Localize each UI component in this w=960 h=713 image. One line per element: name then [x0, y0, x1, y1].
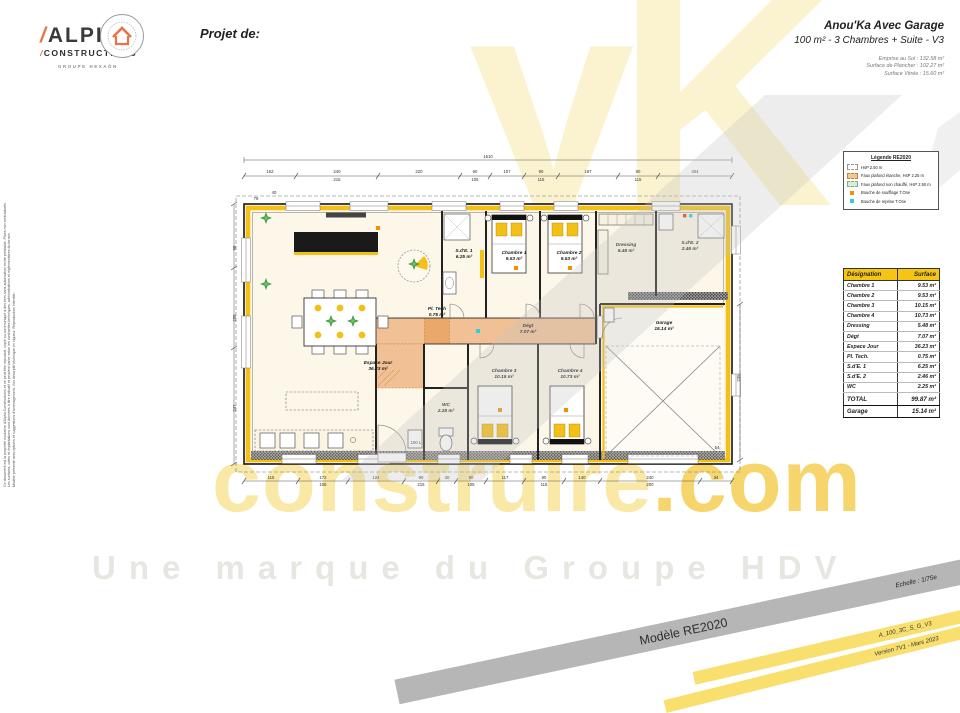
- table-row: S.d'E. 16.25 m²: [844, 362, 940, 372]
- banner-model-label: Modèle RE2020: [638, 615, 729, 647]
- house-icon: [107, 21, 137, 51]
- dimension-label: 107: [503, 169, 511, 174]
- garage-label: Garage: [844, 406, 898, 418]
- dimension-label: 105: [471, 177, 479, 182]
- cell-surface: 10.15 m²: [898, 301, 940, 311]
- dimension-label: 100 L: [411, 440, 422, 445]
- dimension-label: 124: [372, 475, 380, 480]
- dimension-label: 34: [714, 475, 719, 480]
- dimension-label: 1610: [483, 154, 493, 159]
- cell-surface: 10.73 m²: [898, 311, 940, 321]
- dimension-label: 197: [584, 169, 592, 174]
- surface-table-body: Chambre 19.53 m²Chambre 29.53 m²Chambre …: [844, 281, 940, 393]
- watermark-tagline: Une marque du Groupe HDV: [92, 549, 850, 587]
- cell-designation: S.d'E. 2: [844, 372, 898, 382]
- green-swatch: [847, 181, 858, 187]
- orange-swatch: [847, 173, 858, 179]
- cell-designation: Dressing: [844, 321, 898, 331]
- garage-value: 15.14 m²: [898, 406, 940, 418]
- cell-designation: S.d'E. 1: [844, 362, 898, 372]
- plan-title: Anou'Ka Avec Garage: [794, 20, 944, 32]
- legend-item: Bouche de reprise T.One: [847, 198, 935, 204]
- col-designation: Désignation: [844, 269, 898, 281]
- total-label: TOTAL: [844, 393, 898, 406]
- legal-disclaimer: Ce document est la propriété exclusive d…: [3, 97, 15, 487]
- table-row: Chambre 310.15 m²: [844, 301, 940, 311]
- cell-surface: 2.25 m²: [898, 382, 940, 392]
- logo-stamp: [100, 14, 144, 58]
- metric-emprise: Emprise au Sol : 132.58 m²: [794, 56, 944, 63]
- legend-items: HsP 2.50 mFaux plafond étanche, HsP 2.25…: [847, 164, 935, 204]
- dimension-label: 258: [232, 314, 237, 322]
- page: { "colors":{"accent_yellow":"#F3C018","c…: [0, 0, 960, 678]
- banner-model: Modèle RE2020 Echelle : 1/75e: [394, 547, 960, 705]
- dimension-label: 54: [715, 445, 720, 450]
- dimension-label: 215: [417, 482, 425, 487]
- dimension-label: 78: [254, 196, 259, 201]
- legend-label: Bouche de soufflage T.One: [861, 190, 910, 195]
- dimension-label: 90: [636, 169, 641, 174]
- bed-chambre-3: [471, 386, 519, 444]
- legal-disclaimer-text: Ce document est la propriété exclusive d…: [3, 97, 16, 487]
- bed-chambre-1: [485, 215, 533, 273]
- metric-plancher: Surface de Plancher : 102.27 m²: [794, 63, 944, 70]
- logo-slash: /: [40, 24, 48, 47]
- dashed-white-swatch: [847, 164, 858, 170]
- cell-designation: Espace Jour: [844, 342, 898, 352]
- dimension-label: 404: [691, 169, 699, 174]
- dimension-label: 200: [646, 482, 654, 487]
- total-value: 99.87 m²: [898, 393, 940, 406]
- surface-metrics: Emprise au Sol : 132.58 m² Surface de Pl…: [794, 56, 944, 78]
- logo-group-line: GROUPE HEXAÔN: [58, 64, 118, 69]
- legend-label: HsP 2.50 m: [861, 165, 882, 170]
- legend-label: Faux plafond étanche, HsP 2.25 m: [861, 173, 924, 178]
- cell-designation: Pl. Tech.: [844, 352, 898, 362]
- dimension-label: 140: [578, 475, 586, 480]
- dimension-label: 90: [539, 169, 544, 174]
- dimension-label: 240: [333, 169, 341, 174]
- bed-chambre-2: [541, 215, 589, 273]
- cell-designation: Chambre 4: [844, 311, 898, 321]
- plan-subtitle: 100 m² - 3 Chambres + Suite - V3: [794, 35, 944, 46]
- dimension-label: 235: [736, 374, 741, 382]
- title-block: Anou'Ka Avec Garage 100 m² - 3 Chambres …: [794, 20, 944, 78]
- dimension-label: 115: [268, 475, 275, 480]
- cell-surface: 6.25 m²: [898, 362, 940, 372]
- project-label: Projet de:: [200, 26, 260, 41]
- table-row: Dressing5.48 m²: [844, 321, 940, 331]
- table-garage-row: Garage 15.14 m²: [844, 406, 940, 418]
- table-row: Chambre 410.73 m²: [844, 311, 940, 321]
- table-row: Chambre 19.53 m²: [844, 281, 940, 291]
- col-surface: Surface: [898, 269, 940, 281]
- table-row: Espace Jour36.23 m²: [844, 342, 940, 352]
- cell-designation: Chambre 1: [844, 281, 898, 291]
- dimension-label: 90: [419, 475, 424, 480]
- cell-surface: 9.53 m²: [898, 281, 940, 291]
- cell-surface: 0.75 m²: [898, 352, 940, 362]
- dimension-label: 240: [646, 475, 654, 480]
- cell-designation: Chambre 2: [844, 291, 898, 301]
- dimension-label: 40: [272, 190, 277, 195]
- legend-item: HsP 2.50 m: [847, 164, 935, 170]
- cell-surface: 9.53 m²: [898, 291, 940, 301]
- dimension-label: 172: [319, 475, 327, 480]
- table-header-row: Désignation Surface: [844, 269, 940, 281]
- surface-table: Désignation Surface Chambre 19.53 m²Cham…: [843, 268, 940, 418]
- bed-chambre-4: [543, 386, 591, 444]
- cell-surface: 2.46 m²: [898, 372, 940, 382]
- legend-title: Légende RE2020: [847, 155, 935, 161]
- dimension-label: 60: [473, 169, 478, 174]
- legal-line: Modèle présenté avec options et suggesti…: [12, 97, 16, 487]
- legend-item: Faux plafond non chauffé, HsP 2.50 m: [847, 181, 935, 187]
- dimension-label: 162: [266, 169, 274, 174]
- dimension-label: 115: [541, 482, 548, 487]
- table-row: Pl. Tech.0.75 m²: [844, 352, 940, 362]
- dimension-label: 105: [319, 482, 327, 487]
- dining-table: [292, 290, 388, 354]
- dot-orange-swatch: [847, 190, 858, 196]
- dimension-label: 115: [538, 177, 545, 182]
- table-row: Dégt7.07 m²: [844, 331, 940, 341]
- table-total-row: TOTAL 99.87 m²: [844, 393, 940, 406]
- banner-scale-label: Echelle : 1/75e: [895, 574, 938, 590]
- cell-surface: 7.07 m²: [898, 331, 940, 341]
- cell-surface: 5.48 m²: [898, 321, 940, 331]
- dimension-label: 105: [467, 482, 475, 487]
- dimension-label: 30: [445, 475, 450, 480]
- dimension-label: 220: [415, 169, 423, 174]
- cell-surface: 36.23 m²: [898, 342, 940, 352]
- table-row: S.d'E. 22.46 m²: [844, 372, 940, 382]
- dimension-label: 115: [635, 177, 642, 182]
- cell-designation: WC: [844, 382, 898, 392]
- legend-item: Bouche de soufflage T.One: [847, 190, 935, 196]
- table-row: Chambre 29.53 m²: [844, 291, 940, 301]
- dimension-label: 215: [333, 177, 341, 182]
- metric-vitree: Surface Vitrée : 15.60 m²: [794, 71, 944, 78]
- cell-designation: Chambre 3: [844, 301, 898, 311]
- legend-label: Faux plafond non chauffé, HsP 2.50 m: [861, 182, 931, 187]
- dot-cyan-swatch: [847, 198, 858, 204]
- legend-item: Faux plafond étanche, HsP 2.25 m: [847, 173, 935, 179]
- dimension-label: 90: [542, 475, 547, 480]
- dimension-label: 98: [232, 245, 237, 250]
- dimension-label: 90: [469, 475, 474, 480]
- dimension-label: 247: [232, 404, 237, 412]
- floor-plan: Espace Jour36.23 m²S.d'E. 16.25 m²Chambr…: [228, 148, 745, 516]
- dimension-label: 117: [502, 475, 509, 480]
- legend-label: Bouche de reprise T.One: [861, 199, 906, 204]
- table-row: WC2.25 m²: [844, 382, 940, 392]
- legend-box: Légende RE2020 HsP 2.50 mFaux plafond ét…: [843, 151, 939, 210]
- cell-designation: Dégt: [844, 331, 898, 341]
